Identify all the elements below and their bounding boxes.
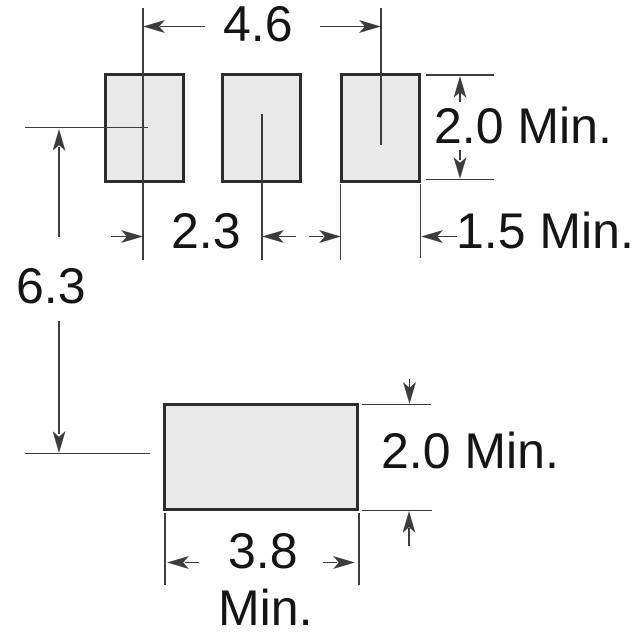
arrowhead-down-icon	[53, 431, 66, 453]
dim-lower-2-0-stub-bottom	[408, 528, 410, 546]
dim-1-5-label: 1.5 Min.	[456, 203, 634, 261]
dim-3-8-label: 3.8	[228, 523, 298, 581]
dim-6-3-label: 6.3	[16, 258, 86, 316]
ext-lower-pad-bottom	[362, 510, 432, 512]
centerline-middle-pad	[261, 114, 263, 260]
ext-right-pad-right-edge	[420, 184, 422, 258]
ext-lower-pad-top	[362, 404, 431, 406]
dim-2-3-tail-right	[278, 236, 296, 238]
dim-3-8-tail-right	[323, 562, 337, 564]
dim-6-3-line-upper	[58, 147, 60, 237]
ext-line-pad-top	[426, 74, 494, 76]
ext-lower-pad-right-edge	[358, 513, 360, 585]
arrowhead-down-icon	[454, 157, 467, 179]
dim-lower-pad-height-label: 2.0 Min.	[381, 423, 559, 481]
dimension-diagram: 4.6 2.0 Min. 2.3 1.5 Min. 6.3 2.0 Min. 3…	[0, 0, 640, 640]
leader-lower-pad-center	[25, 453, 150, 455]
lower-pad	[163, 403, 359, 511]
dim-pad-height-label: 2.0 Min.	[434, 98, 612, 156]
dim-1-5-tail-right	[437, 236, 457, 238]
centerline-right-pad	[380, 8, 382, 145]
dim-4-6-line-right	[320, 26, 365, 28]
ext-lower-pad-left-edge	[164, 513, 166, 585]
dim-3-8-tail-left	[185, 562, 199, 564]
ext-right-pad-left-edge	[340, 184, 342, 260]
dim-4-6-line-left	[160, 26, 205, 28]
dim-3-8-min-label: Min.	[218, 580, 312, 638]
dim-6-3-line-lower	[58, 321, 60, 434]
centerline-left-pad	[142, 8, 144, 260]
dim-2-3-label: 2.3	[171, 203, 241, 261]
dim-1-5-tail-left	[309, 236, 323, 238]
dim-2-3-tail-left	[111, 236, 127, 238]
leader-upper-row-center	[25, 127, 148, 129]
dim-4-6-label: 4.6	[223, 0, 293, 54]
